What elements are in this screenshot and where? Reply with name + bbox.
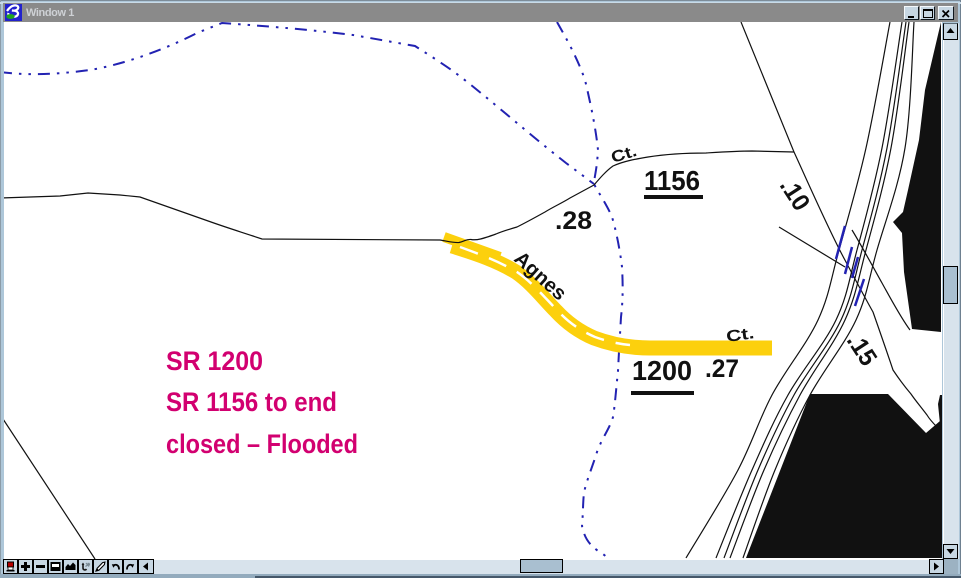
- svg-text:.15: .15: [841, 328, 882, 371]
- svg-text:Ct.: Ct.: [609, 143, 639, 167]
- svg-text:.27: .27: [705, 355, 739, 383]
- svg-text:SR 1200: SR 1200: [166, 346, 263, 376]
- svg-text:1200: 1200: [632, 355, 692, 386]
- svg-text:closed – Flooded: closed – Flooded: [166, 429, 358, 459]
- svg-text:.10: .10: [774, 173, 815, 216]
- svg-text:1156: 1156: [644, 165, 700, 196]
- svg-text:.28: .28: [555, 207, 592, 235]
- svg-text:SR 1156 to end: SR 1156 to end: [166, 387, 337, 417]
